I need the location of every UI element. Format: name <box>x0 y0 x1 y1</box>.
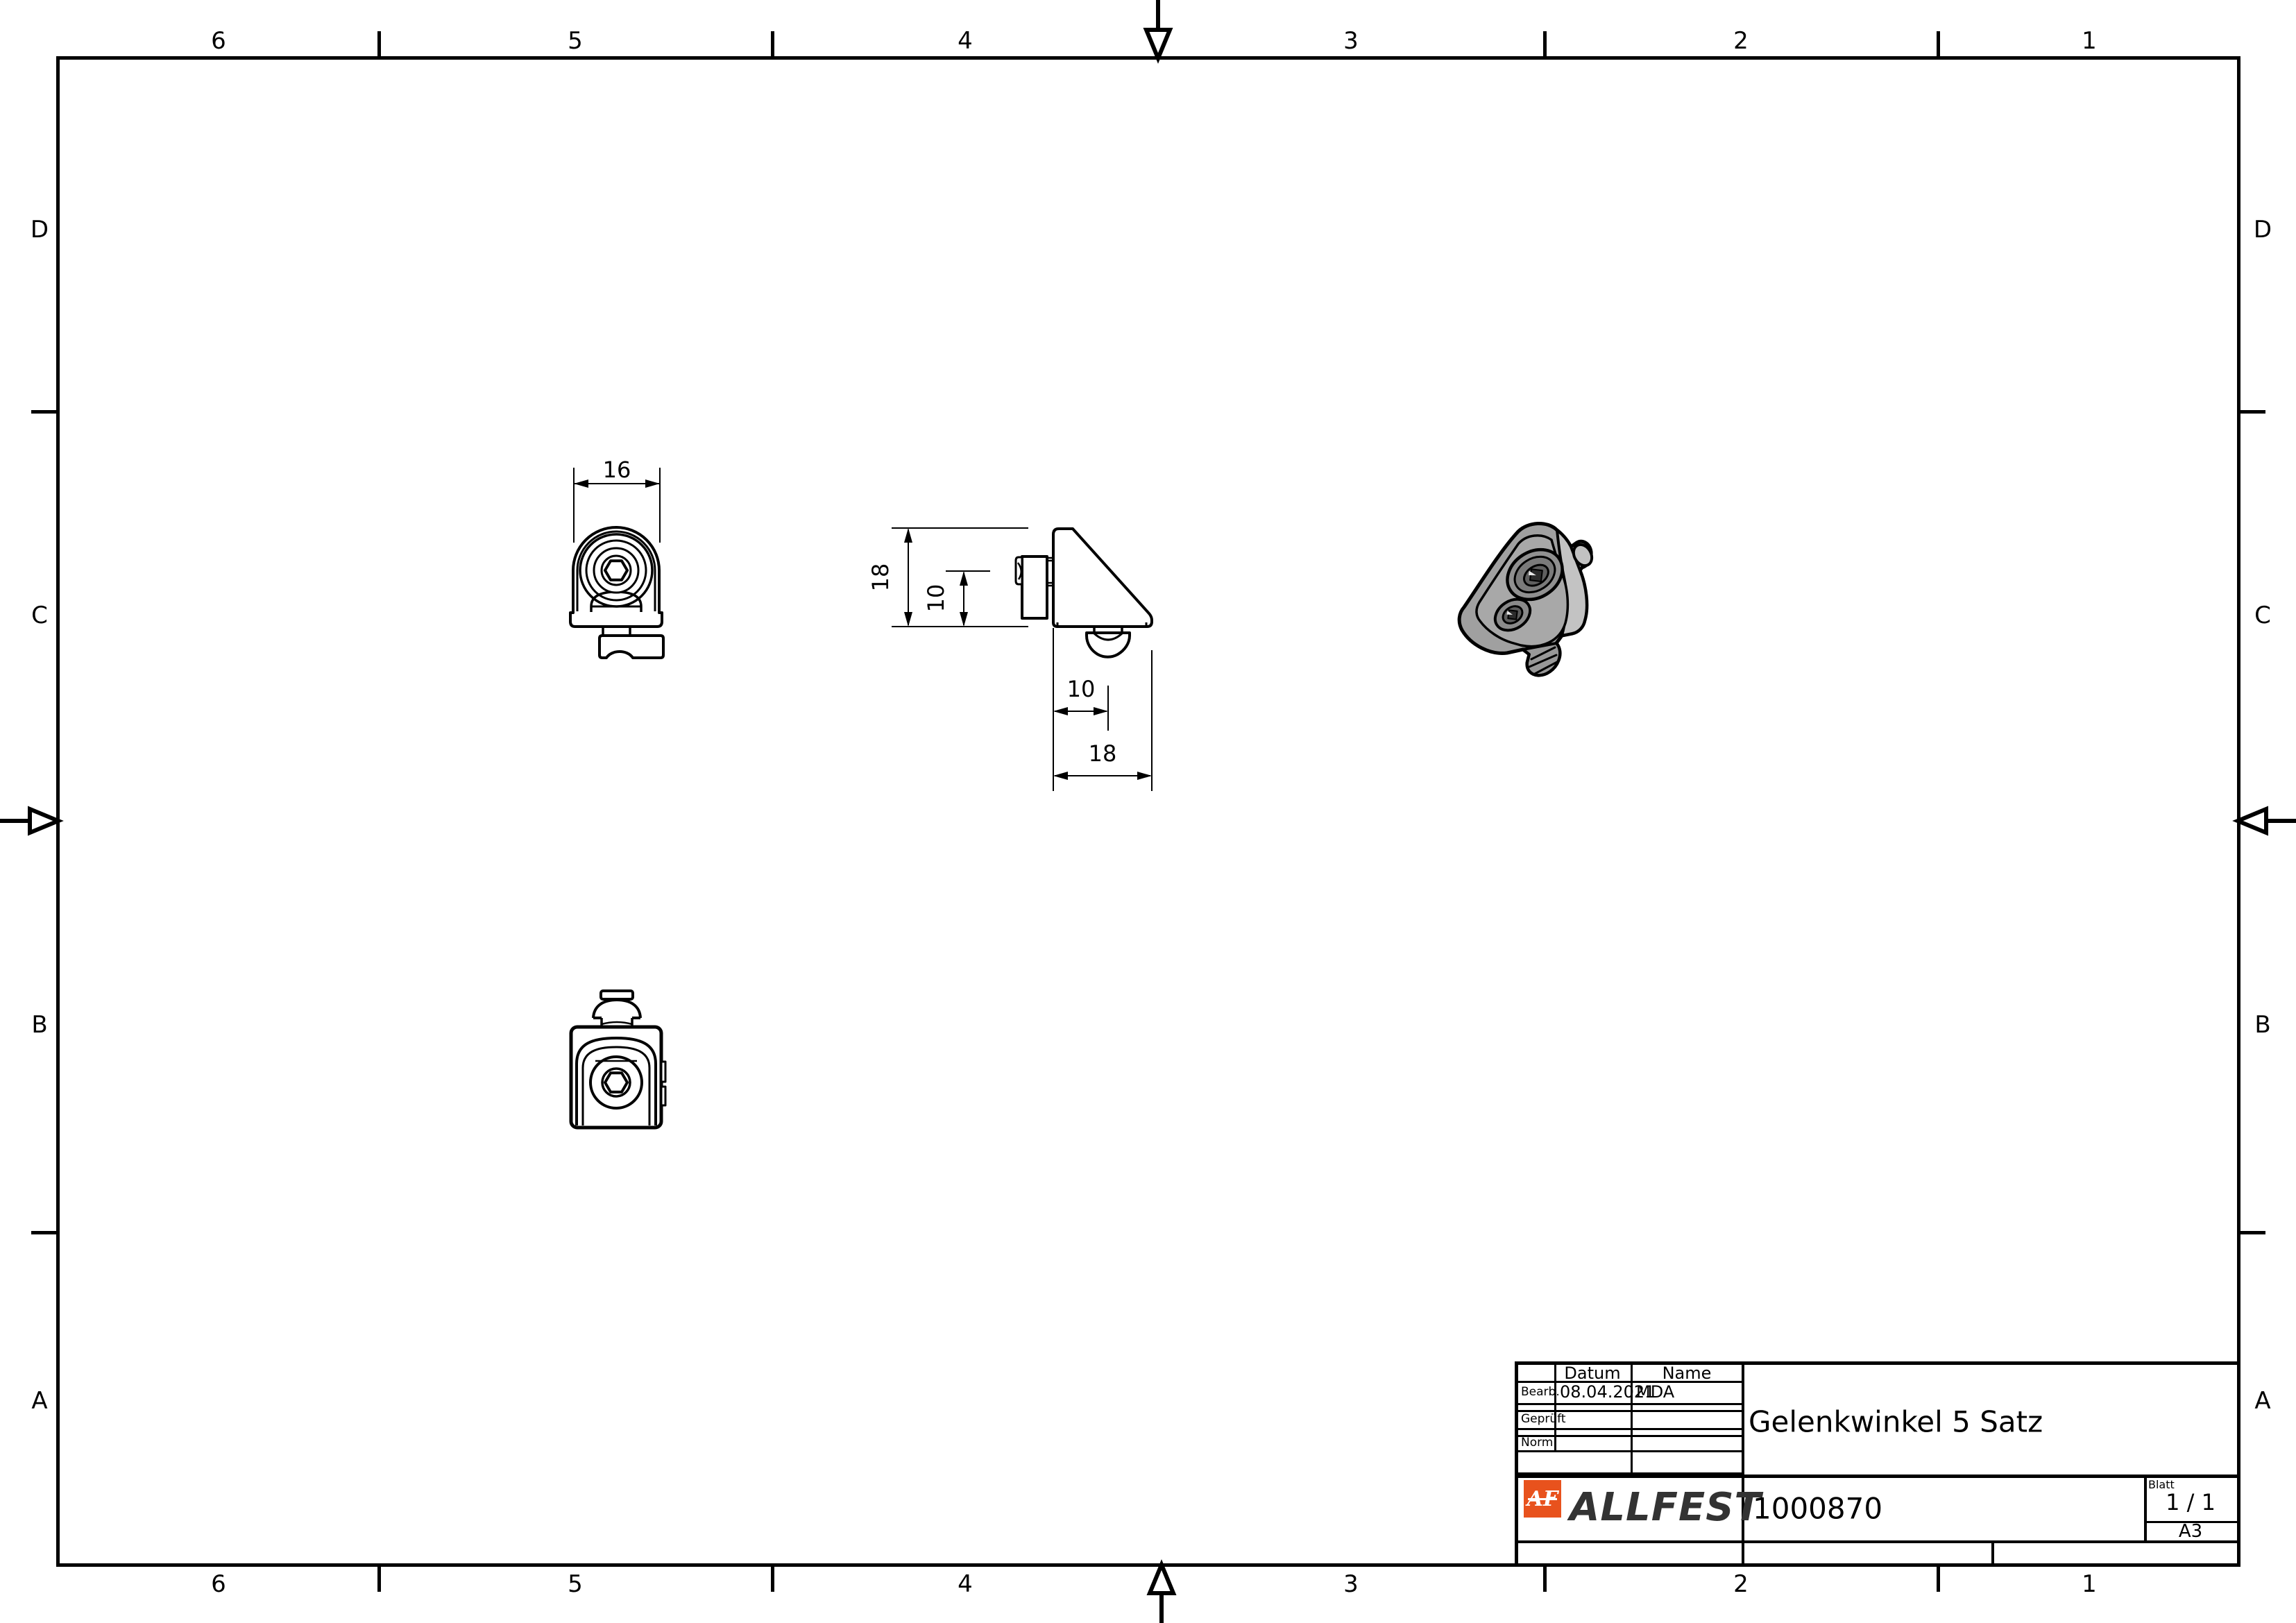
grid-column-label: 4 <box>937 28 993 54</box>
bottom-view-tab <box>661 1062 665 1082</box>
border-tick <box>2240 410 2265 414</box>
bottom-view-knob-top <box>601 991 633 999</box>
grid-column-label: 1 <box>2061 28 2117 54</box>
grid-row-label: B <box>2244 1012 2281 1038</box>
allfest-wordmark: ALLFEST <box>1570 1485 1762 1530</box>
row-label-bearb: Bearb. <box>1521 1385 1560 1399</box>
grid-column-label: 2 <box>1713 28 1769 54</box>
border-tick <box>1937 1567 1940 1592</box>
col-header-datum: Datum <box>1564 1363 1620 1383</box>
title-block-line <box>1518 1540 2237 1543</box>
drawing-title: Gelenkwinkel 5 Satz <box>1749 1405 2043 1439</box>
grid-row-label: A <box>21 1388 58 1414</box>
center-mark-top <box>1143 0 1173 62</box>
allfest-logo-mark: AF <box>1524 1480 1561 1518</box>
grid-column-label: 3 <box>1323 28 1379 54</box>
col-header-name: Name <box>1663 1363 1712 1383</box>
part-number: 1000870 <box>1753 1492 1882 1526</box>
side-view-knob <box>1022 556 1047 618</box>
grid-row-label: C <box>21 602 58 629</box>
border-tick <box>771 31 774 56</box>
value-bearb-name: MDA <box>1636 1382 1674 1402</box>
border-tick <box>377 1567 381 1592</box>
dim-arrow <box>574 479 588 488</box>
title-block-line <box>1554 1365 1556 1450</box>
grid-column-label: 1 <box>2061 1571 2117 1597</box>
allfest-monogram-strike <box>1528 1498 1557 1500</box>
bottom-view <box>555 971 749 1180</box>
side-height-inner-dim-text: 10 <box>923 584 949 613</box>
paper-format: A3 <box>2179 1521 2202 1542</box>
bottom-view-tab <box>661 1087 665 1105</box>
title-block: Datum Name Bearb. 08.04.2021 MDA Geprüft… <box>1515 1361 2240 1567</box>
border-tick <box>1543 31 1547 56</box>
iso-foot-tab <box>1523 643 1560 675</box>
border-tick <box>771 1567 774 1592</box>
grid-column-label: 4 <box>937 1571 993 1597</box>
row-label-norm: Norm <box>1521 1436 1553 1450</box>
title-block-line <box>1991 1542 1994 1563</box>
front-width-dim-text: 16 <box>603 457 631 483</box>
grid-column-label: 3 <box>1323 1571 1379 1597</box>
side-width-dim-text: 18 <box>1089 740 1117 767</box>
side-width-inner-dim-text: 10 <box>1067 676 1096 702</box>
border-tick <box>31 1231 56 1234</box>
side-view-foot <box>1087 633 1130 657</box>
grid-row-label: D <box>2244 216 2281 243</box>
sheet-value: 1 / 1 <box>2166 1489 2216 1515</box>
front-view: 16 <box>548 437 742 715</box>
title-block-line <box>1518 1475 2237 1478</box>
grid-row-label: A <box>2244 1388 2281 1414</box>
border-tick <box>2240 1231 2265 1234</box>
center-mark-bottom <box>1146 1561 1177 1623</box>
title-block-line <box>1518 1428 1744 1430</box>
grid-column-label: 5 <box>547 1571 603 1597</box>
hex-socket <box>605 561 627 580</box>
side-view: 18 10 10 18 <box>867 513 1214 819</box>
grid-column-label: 6 <box>191 28 246 54</box>
center-mark-left <box>0 806 62 836</box>
center-mark-right <box>2234 806 2296 836</box>
title-block-line <box>2144 1477 2147 1542</box>
side-view-wedge <box>1053 529 1152 627</box>
grid-column-label: 5 <box>547 28 603 54</box>
dim-arrow <box>645 479 660 488</box>
title-block-line <box>1742 1365 1744 1563</box>
border-tick <box>1543 1567 1547 1592</box>
title-block-line <box>1518 1450 1744 1452</box>
bottom-view-part <box>571 991 665 1128</box>
row-label-geprueft: Geprüft <box>1521 1412 1566 1426</box>
isometric-view <box>1457 513 1651 708</box>
front-view-part <box>570 527 663 658</box>
grid-row-label: D <box>21 216 58 243</box>
grid-row-label: C <box>2244 602 2281 629</box>
border-tick <box>1937 31 1940 56</box>
side-view-part <box>1016 529 1152 657</box>
hex-socket <box>605 1073 627 1092</box>
title-block-line <box>1518 1403 1744 1405</box>
border-tick <box>377 31 381 56</box>
grid-column-label: 2 <box>1713 1571 1769 1597</box>
grid-column-label: 6 <box>191 1571 246 1597</box>
drawing-sheet: 6 5 4 3 2 1 6 5 4 3 2 1 D C B A D C B A <box>0 0 2296 1623</box>
front-view-base-block <box>599 636 663 658</box>
side-height-dim-text: 18 <box>867 563 894 592</box>
grid-row-label: B <box>21 1012 58 1038</box>
border-tick <box>31 410 56 414</box>
